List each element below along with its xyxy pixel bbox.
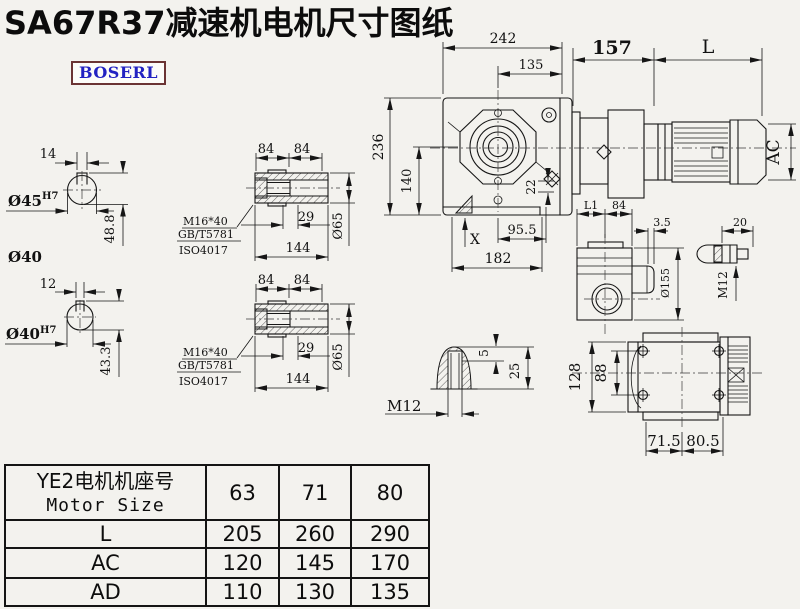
label-m12-detail: M12: [387, 397, 421, 415]
label-bolt-m16-2: M16*40: [183, 346, 228, 359]
AD-63: 110: [206, 578, 279, 606]
table-row-AD: AD 110 130 135: [5, 578, 429, 606]
L-80: 290: [351, 520, 429, 548]
table-row-L: L 205 260 290: [5, 520, 429, 548]
dim-29-2: 29: [298, 341, 315, 356]
drawing-sheet: SA67R37减速机电机尺寸图纸 BOSERL 14: [0, 0, 800, 609]
dim-key-width-40: 12: [40, 277, 57, 292]
dim-80-5: 80.5: [686, 432, 719, 450]
dim-144: 144: [286, 241, 311, 256]
motor-fins: [674, 128, 728, 176]
dim-157: 157: [592, 37, 632, 59]
stud-detail-view: 20 M12: [697, 216, 753, 301]
dim-dia-155: Ø155: [659, 268, 672, 298]
dim-29: 29: [298, 210, 315, 225]
dim-dia-65-2: Ø65: [331, 343, 346, 370]
mark-X: X: [470, 232, 480, 248]
dim-71-5: 71.5: [647, 432, 680, 450]
dim-dia-40-label: Ø40: [6, 325, 40, 343]
dim-20: 20: [733, 216, 747, 229]
dim-dia-45-tolerance: H7: [42, 191, 58, 202]
bottom-view-gearbox: 128 88 71.5 80.5: [566, 327, 762, 456]
size-80: 80: [351, 465, 429, 520]
dim-L: L: [702, 36, 715, 58]
shaft-section-view-1: 14 Ø45 H7 48.8 Ø40: [6, 147, 128, 266]
dim-128: 128: [566, 363, 584, 392]
dim-84-b: 84: [294, 142, 311, 157]
row-label-L: L: [5, 520, 206, 548]
L-71: 260: [279, 520, 351, 548]
dim-25: 25: [508, 363, 523, 380]
key-detail-view: M12 5 25: [385, 336, 534, 417]
surface-mark-triangle: [456, 196, 472, 213]
AC-80: 170: [351, 548, 429, 578]
table-row-AC: AC 120 145 170: [5, 548, 429, 578]
dim-height-48-8: 48.8: [103, 215, 118, 244]
label-std-iso: ISO4017: [179, 244, 228, 257]
size-63: 63: [206, 465, 279, 520]
label-std-gb: GB/T5781: [178, 228, 234, 241]
dim-AC: AC: [764, 139, 784, 165]
AD-71: 130: [279, 578, 351, 606]
motor-size-table: YE2电机机座号 Motor Size 63 71 80 L 205 260 2…: [4, 464, 430, 607]
label-std-gb-2: GB/T5781: [178, 359, 234, 372]
dim-5: 5: [477, 349, 491, 357]
label-std-iso-2: ISO4017: [179, 375, 228, 388]
dim-242: 242: [490, 31, 517, 47]
dim-84-a2: 84: [258, 273, 275, 288]
note-dia-40: Ø40: [8, 248, 42, 266]
dim-L1: L1: [584, 199, 598, 212]
dim-144-2: 144: [286, 372, 311, 387]
table-header-cell: YE2电机机座号 Motor Size: [5, 465, 206, 520]
dim-3-5: 3.5: [653, 216, 671, 229]
size-71: 71: [279, 465, 351, 520]
row-label-AD: AD: [5, 578, 206, 606]
side-view-gearbox: L1 84 3.5 Ø155: [577, 199, 684, 334]
header-en: Motor Size: [6, 494, 205, 518]
flange-fins: [728, 346, 748, 402]
label-bolt-m16: M16*40: [183, 215, 228, 228]
AC-71: 145: [279, 548, 351, 578]
dim-22: 22: [524, 179, 538, 194]
dim-236: 236: [371, 134, 387, 161]
header-cn: YE2电机机座号: [6, 468, 205, 494]
dim-84-b2: 84: [294, 273, 311, 288]
AD-80: 135: [351, 578, 429, 606]
hollow-shaft-view-2: 84 84 29 144 Ø6: [177, 273, 355, 392]
dim-95-5: 95.5: [508, 223, 537, 238]
dim-dia-65: Ø65: [331, 212, 346, 239]
dim-key-width-45: 14: [40, 147, 57, 162]
dim-dia-40-tolerance: H7: [40, 325, 56, 336]
dim-135: 135: [519, 58, 544, 73]
hollow-shaft-view-1: 84 84 29 144 Ø6: [177, 142, 355, 261]
L-63: 205: [206, 520, 279, 548]
dim-88: 88: [592, 363, 610, 382]
label-m12-side: M12: [716, 271, 730, 299]
dim-dia-45-label: Ø45: [8, 192, 42, 210]
front-view-gearbox-motor: 242 135 157 L AC 236 140: [371, 31, 796, 272]
AC-63: 120: [206, 548, 279, 578]
dim-182: 182: [485, 251, 512, 267]
dim-84-side: 84: [612, 199, 626, 212]
row-label-AC: AC: [5, 548, 206, 578]
dim-height-43-3: 43.3: [99, 347, 114, 376]
shaft-section-view-2: 12 Ø40 H7 43.3: [5, 277, 124, 377]
dim-140: 140: [400, 169, 415, 194]
table-row-header: YE2电机机座号 Motor Size 63 71 80: [5, 465, 429, 520]
dim-84-a: 84: [258, 142, 275, 157]
